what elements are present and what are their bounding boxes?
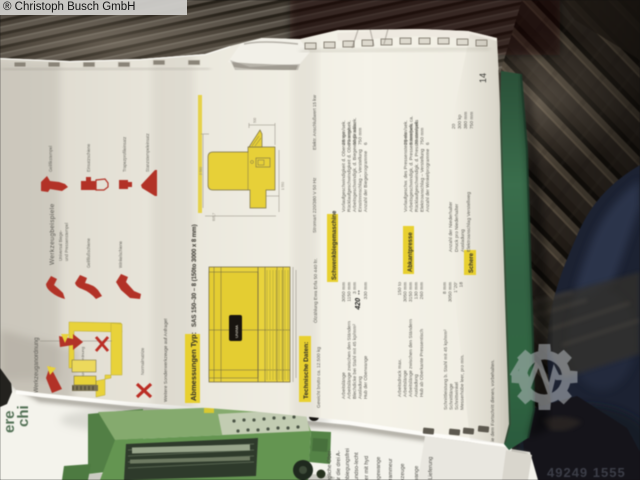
svg-text:reundundso-lecht: reundundso-lecht (354, 452, 360, 480)
svg-text:750 mm: 750 mm (358, 128, 364, 145)
svg-text:1 550: 1 550 (281, 182, 285, 190)
svg-text:Technische Daten:: Technische Daten: (303, 342, 310, 399)
svg-text:6: 6 (363, 142, 369, 145)
svg-text:Ölzählung Ewa Erfa 50 440 lt: Ölzählung Ewa Erfa 50 440 ltr. (312, 258, 319, 323)
svg-text:3050 mm: 3050 mm (448, 282, 454, 302)
svg-text:Ausladung: Ausladung (460, 229, 466, 252)
svg-text:1150 mm: 1150 mm (347, 282, 353, 302)
svg-text:3050 mm: 3050 mm (403, 282, 409, 302)
svg-text:380 mm: 380 mm (463, 112, 469, 129)
svg-text:und Pressenstempel: und Pressenstempel (64, 223, 69, 261)
svg-text:Schwenkbiegemaschine: Schwenkbiegemaschine (332, 210, 338, 280)
svg-text:Elektroanschlag – Verstellung: Elektroanschlag – Verstellung (420, 148, 426, 212)
svg-text:Vorlaufgeschw. des Pressenstem: Vorlaufgeschw. des Pressenstempels (403, 132, 409, 212)
svg-text:Abkantpresse: Abkantpresse (408, 232, 414, 272)
svg-text:Druck pro Niederhalter: Druck pro Niederhalter (454, 203, 460, 252)
svg-text:Anzahl der Biegeprogramme: Anzahl der Biegeprogramme (363, 151, 369, 212)
svg-text:130 mm: 130 mm (414, 282, 420, 299)
svg-text:Ausladung: Ausladung (358, 376, 364, 399)
svg-text:3050 mm: 3050 mm (341, 282, 347, 302)
svg-text:3150 mm: 3150 mm (408, 282, 414, 302)
svg-text:895,7: 895,7 (212, 213, 216, 221)
svg-text:gewange: gewange (414, 466, 420, 480)
svg-text:Universal Biege-: Universal Biege- (58, 230, 63, 261)
svg-text:Elektr. Anschlußwert 15 kw: Elektr. Anschlußwert 15 kw (312, 94, 317, 150)
svg-text:20: 20 (451, 123, 457, 129)
svg-text:Vorlaufgeschwindigkeit d. Ober: Vorlaufgeschwindigkeit d. Oberwange (341, 131, 347, 212)
svg-text:Messerhübe leer, pro min.: Messerhübe leer, pro min. (460, 355, 466, 410)
svg-text:Gewicht brutto ca. 12.500 kg: Gewicht brutto ca. 12.500 kg (316, 347, 322, 408)
svg-text:6: 6 (425, 142, 431, 145)
svg-text:Rücklaufgeschwindigk. d. Press: Rücklaufgeschwindigk. d. Pressenstempels (414, 119, 420, 212)
svg-text:Arbeitslänge: Arbeitslänge (403, 370, 409, 397)
svg-text:Trapezprofileinsatz: Trapezprofileinsatz (122, 137, 127, 172)
svg-text:49249 1555: 49249 1555 (547, 465, 626, 480)
svg-text:260 mm: 260 mm (419, 282, 425, 299)
svg-text:Arbeitslänge: Arbeitslänge (341, 372, 347, 399)
svg-text:Abmessungen Typ:: Abmessungen Typ: (189, 332, 198, 401)
svg-text:Einsatzschiene: Einsatzschiene (86, 143, 91, 172)
svg-text:330 mm: 330 mm (363, 282, 369, 299)
svg-text:0 Hz, Lieferung: 0 Hz, Lieferung (428, 457, 434, 480)
svg-text:Arbeitsgeschwindigk. d. Biegew: Arbeitsgeschwindigk. d. Biegewange max. (352, 122, 358, 212)
svg-text:8 mm: 8 mm (442, 282, 448, 294)
svg-text:300 kp: 300 kp (457, 114, 463, 129)
svg-text:durchbiegungsfrei: durchbiegungsfrei (345, 448, 351, 480)
svg-text:2 500: 2 500 (199, 167, 203, 175)
svg-text:Arbeitsgeschwindigk. d. Presse: Arbeitsgeschwindigk. d. Pressenstempels … (409, 116, 415, 212)
svg-text:Anzahl der Niederhalter: Anzahl der Niederhalter (448, 201, 454, 252)
svg-text:Elektroanschlag Verstellweg: Elektroanschlag Verstellweg (466, 192, 472, 252)
svg-text:Normalmatrize: Normalmatrize (140, 347, 145, 375)
svg-text:Arbeitslänge zwischen den Stän: Arbeitslänge zwischen den Ständern (408, 319, 414, 397)
svg-text:Werkzeuganordnung: Werkzeuganordnung (34, 337, 40, 393)
svg-text:, Biegewange: , Biegewange (376, 457, 382, 480)
svg-text:Stanzstempeleinsatz: Stanzstempeleinsatz (145, 133, 150, 172)
svg-text:ere: ere (1, 410, 18, 433)
svg-text:750 mm: 750 mm (420, 128, 426, 145)
svg-text:bewegliche Ober-: bewegliche Ober- (327, 449, 333, 480)
svg-text:Weitere Sonderwerkzeuge auf An: Weitere Sonderwerkzeuge auf Anfrage! (163, 318, 169, 402)
svg-text:Anzahl der Winkelprogramme: Anzahl der Winkelprogramme (425, 148, 431, 212)
svg-text:Schnittlänge: Schnittlänge (449, 383, 455, 410)
svg-text:420 ↔: 420 ↔ (355, 289, 362, 311)
svg-text:Gelifilußschiene: Gelifilußschiene (86, 238, 91, 268)
svg-text:14: 14 (478, 73, 488, 83)
svg-text:zylinder mit hyd: zylinder mit hyd (364, 456, 370, 480)
svg-text:Gelifikstempel: Gelifikstempel (48, 146, 53, 172)
svg-text:Ausladung: Ausladung (414, 374, 420, 397)
svg-text:Hub der Oberwange: Hub der Oberwange (363, 355, 369, 399)
svg-text:Hub ab Oberkante Pressentisch: Hub ab Oberkante Pressentisch (419, 329, 425, 397)
svg-text:18: 18 (459, 282, 465, 288)
svg-text:1°20': 1°20' (453, 282, 459, 293)
svg-text:Winkelschiene: Winkelschiene (118, 240, 123, 268)
svg-text:Schnittwinkel: Schnittwinkel (454, 382, 460, 410)
svg-text:Arbeitslänge zwischen den Stän: Arbeitslänge zwischen den Ständern (347, 321, 353, 399)
svg-text:Einstimmschlag – Verstellung: Einstimmschlag – Verstellung (358, 149, 364, 212)
svg-text:Rücklaufgeschwindigkeit d. Obe: Rücklaufgeschwindigkeit d. Oberwange (347, 128, 353, 212)
svg-text:500: 500 (253, 117, 257, 123)
svg-text:werkzeuge: werkzeuge (400, 463, 406, 480)
svg-text:Stromart 220/380 V 50 Hz: Stromart 220/380 V 50 Hz (312, 177, 318, 233)
svg-text:SAS 150–30 – 8 (150to 3000 x: SAS 150–30 – 8 (150to 3000 x 8 mm) (191, 224, 198, 327)
svg-text:150 to: 150 to (397, 282, 403, 296)
svg-text:Schnittleistung b. Stahl mit 4: Schnittleistung b. Stahl mit 45 kp/mm² (443, 329, 449, 410)
svg-text:UNIMA: UNIMA (234, 325, 239, 338)
svg-text:hub für die drei A-: hub für die drei A- (336, 450, 342, 480)
svg-text:Arbeitsdruck max.: Arbeitsdruck max. (397, 359, 403, 397)
svg-text:Werkzeugbeispiele: Werkzeugbeispiele (49, 203, 56, 265)
svg-text:Blechdicke bei Stahl mit 45 kp: Blechdicke bei Stahl mit 45 kp/mm² (352, 324, 358, 399)
svg-text:Programmeur: Programmeur (388, 458, 394, 480)
svg-text:750 mm: 750 mm (469, 112, 475, 129)
svg-text:Schere: Schere (469, 252, 475, 273)
